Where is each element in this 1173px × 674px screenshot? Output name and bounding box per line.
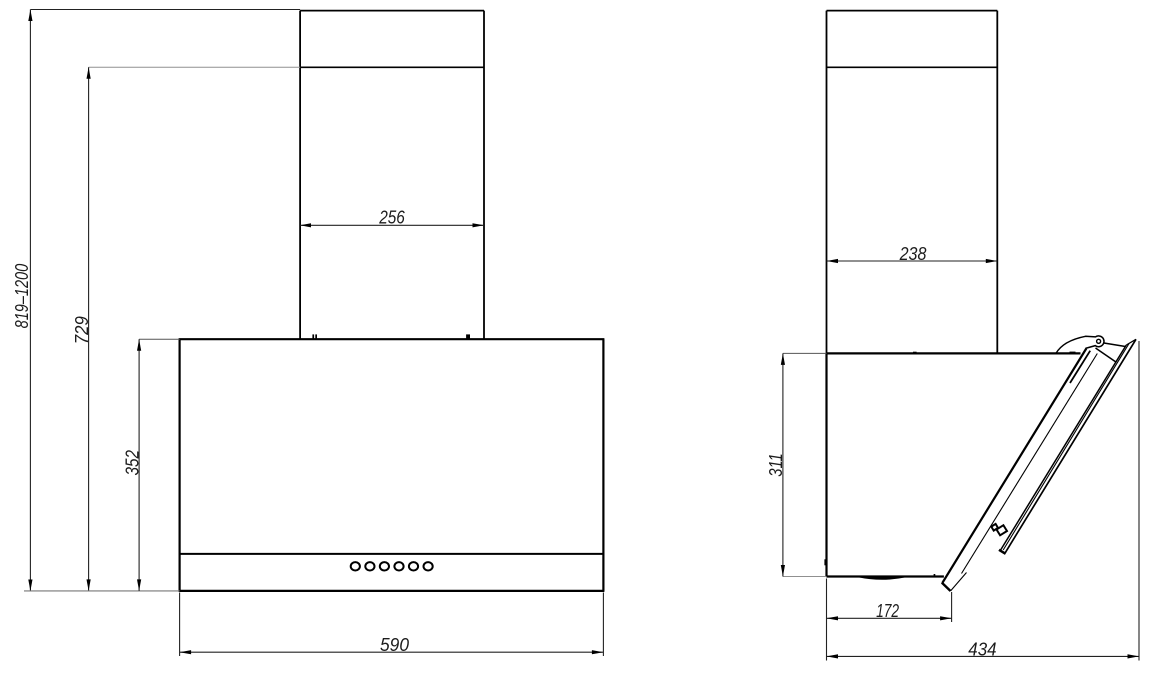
svg-text:172: 172 xyxy=(876,600,900,621)
svg-text:311: 311 xyxy=(765,453,786,477)
svg-text:819–1200: 819–1200 xyxy=(11,263,32,328)
svg-text:729: 729 xyxy=(71,316,92,344)
svg-text:352: 352 xyxy=(121,449,142,475)
svg-text:590: 590 xyxy=(380,634,410,655)
svg-text:434: 434 xyxy=(968,638,996,659)
svg-text:256: 256 xyxy=(378,207,405,228)
svg-text:238: 238 xyxy=(899,243,927,264)
